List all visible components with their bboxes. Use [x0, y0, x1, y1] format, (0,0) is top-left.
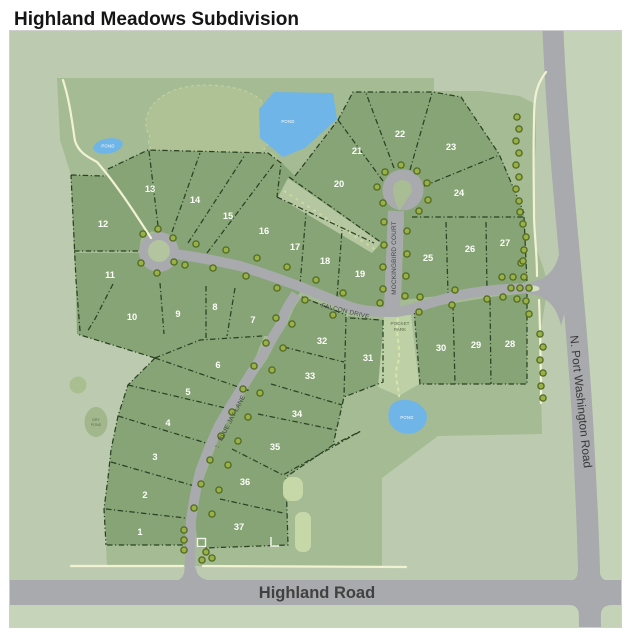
svg-text:16: 16	[259, 226, 269, 236]
svg-text:11: 11	[105, 270, 115, 280]
svg-text:MOCKINGBIRD COURT: MOCKINGBIRD COURT	[391, 221, 398, 295]
svg-text:POND: POND	[281, 119, 294, 124]
svg-text:35: 35	[270, 442, 280, 452]
svg-text:37: 37	[234, 522, 244, 532]
svg-text:2: 2	[142, 490, 147, 500]
svg-text:Highland Meadows Subdivision: Highland Meadows Subdivision	[14, 9, 299, 30]
svg-text:POND: POND	[101, 144, 114, 149]
svg-text:Highland Road: Highland Road	[259, 584, 375, 602]
svg-text:13: 13	[145, 184, 155, 194]
svg-text:24: 24	[454, 188, 465, 198]
svg-text:4: 4	[165, 418, 171, 428]
svg-text:8: 8	[212, 302, 217, 312]
svg-text:23: 23	[446, 142, 456, 152]
svg-text:25: 25	[423, 253, 433, 263]
svg-text:9: 9	[175, 309, 180, 319]
svg-text:27: 27	[500, 238, 510, 248]
svg-text:32: 32	[317, 336, 327, 346]
svg-text:PARK: PARK	[394, 327, 407, 332]
svg-text:22: 22	[395, 129, 405, 139]
svg-text:6: 6	[215, 360, 220, 370]
svg-text:5: 5	[185, 387, 190, 397]
svg-text:7: 7	[250, 315, 255, 325]
svg-text:26: 26	[465, 244, 475, 254]
svg-text:29: 29	[471, 340, 481, 350]
svg-text:DRY: DRY	[92, 418, 100, 422]
svg-text:30: 30	[436, 343, 446, 353]
svg-text:28: 28	[505, 339, 515, 349]
svg-text:18: 18	[320, 256, 330, 266]
svg-text:1: 1	[137, 527, 142, 537]
svg-text:POND: POND	[400, 415, 413, 420]
svg-text:POCKET: POCKET	[391, 321, 410, 326]
svg-text:34: 34	[292, 409, 303, 419]
svg-text:POND: POND	[91, 423, 102, 427]
svg-text:19: 19	[355, 269, 365, 279]
svg-text:33: 33	[305, 371, 315, 381]
svg-text:3: 3	[152, 452, 157, 462]
svg-text:31: 31	[363, 353, 373, 363]
svg-text:36: 36	[240, 477, 250, 487]
svg-text:21: 21	[352, 146, 362, 156]
svg-text:14: 14	[190, 195, 201, 205]
svg-text:12: 12	[98, 219, 108, 229]
svg-text:10: 10	[127, 312, 137, 322]
svg-text:15: 15	[223, 211, 233, 221]
svg-text:17: 17	[290, 242, 300, 252]
svg-text:20: 20	[334, 179, 344, 189]
